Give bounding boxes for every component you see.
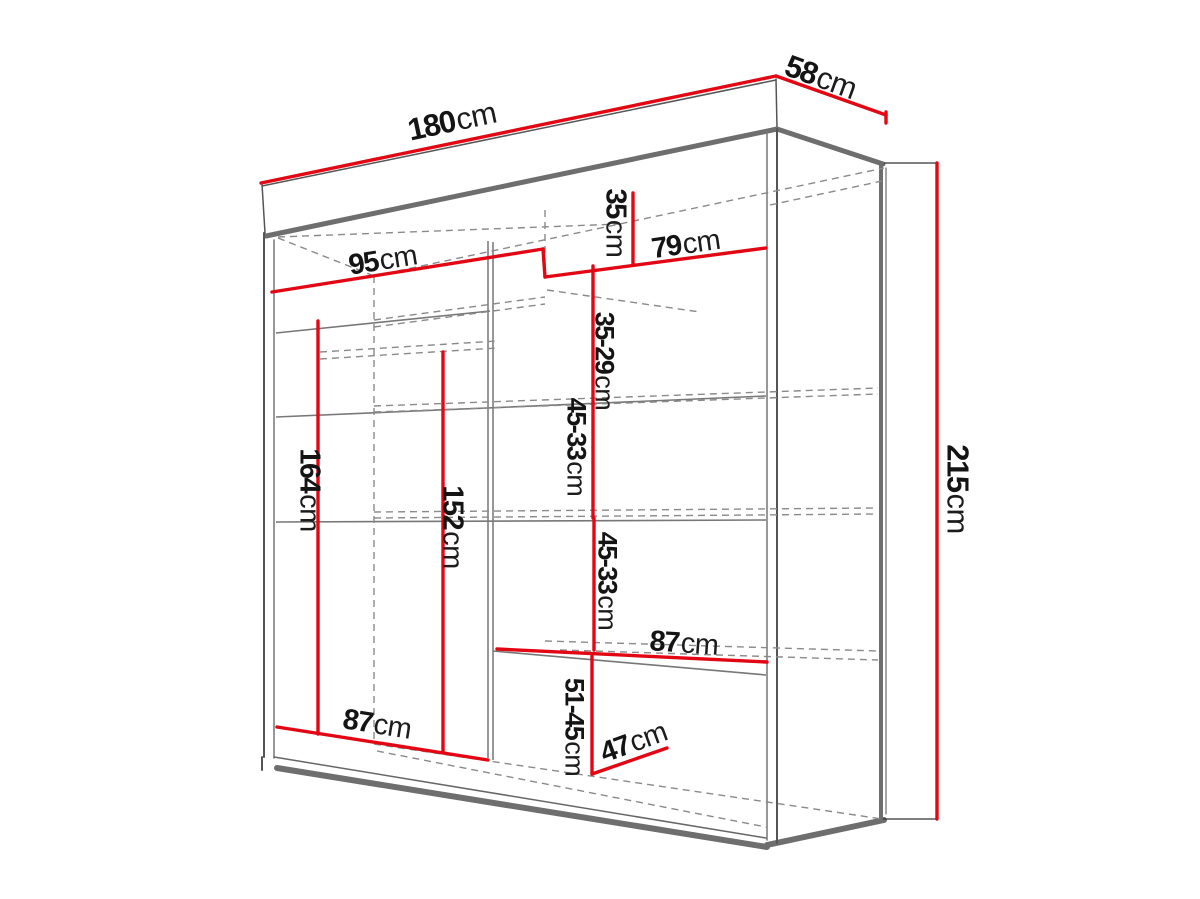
dim-value: 215: [941, 444, 976, 491]
dim-value: 45-33: [562, 398, 592, 460]
side-back-top: [770, 181, 882, 205]
dim-unit: cm: [437, 531, 469, 569]
wardrobe-line-drawing: [0, 0, 1200, 899]
side-top-edge: [777, 129, 883, 164]
dim-value: 35: [600, 189, 632, 218]
dim-unit: cm: [681, 224, 723, 261]
dim-label-total-height: 215cm: [943, 444, 974, 534]
dim-unit: cm: [941, 493, 976, 533]
dim-label-mid-shelf-width: 87cm: [649, 627, 720, 661]
dim-unit: cm: [593, 595, 623, 630]
dim-label-top-section-height: 35cm: [601, 189, 630, 258]
dim-value: 45-33: [593, 532, 623, 594]
dim-value: 87: [649, 625, 680, 659]
dim-value: 95: [346, 246, 380, 282]
dim-label-hanging-height-left: 164cm: [295, 448, 324, 532]
left-top-shelf: [276, 311, 490, 333]
fascia-left-edge: [262, 184, 265, 233]
dim-label-shelf-gap-1: 35-29cm: [591, 312, 618, 411]
right-rail-hidden: [547, 290, 700, 312]
fascia-top-edge: [262, 80, 776, 186]
dim-unit: cm: [560, 741, 590, 776]
dim-unit: cm: [562, 461, 592, 496]
dim-value: 164: [294, 448, 326, 492]
top-shelf-back-2: [374, 304, 545, 327]
dim-180-line: [261, 76, 776, 183]
shelf-front-edges: [276, 311, 766, 675]
dim-unit: cm: [590, 375, 620, 410]
vertical-divider: [488, 241, 493, 760]
dim-door-step: [543, 249, 545, 277]
dim-label-bottom-gap: 51-45cm: [561, 678, 588, 777]
dim-label-shelf-gap-3: 45-33cm: [594, 532, 621, 631]
dim-unit: cm: [371, 708, 413, 745]
plinth-side-edge: [767, 820, 884, 845]
dim-value: 51-45: [560, 678, 590, 740]
dim-label-shelf-gap-2: 45-33cm: [563, 398, 590, 497]
dim-value: 35-29: [590, 312, 620, 374]
front-top-edge: [266, 129, 777, 236]
dim-label-hanging-height-right: 152cm: [438, 485, 467, 569]
witness-lines: [883, 163, 936, 819]
dim-unit: cm: [294, 494, 326, 532]
dim-value: 87: [341, 703, 375, 739]
dim-value: 79: [650, 229, 683, 265]
dim-unit: cm: [377, 239, 419, 276]
dim-unit: cm: [680, 627, 720, 662]
dim-value: 152: [437, 485, 469, 529]
dim-unit: cm: [600, 220, 632, 258]
fascia-right-edge: [776, 79, 777, 128]
front-bottom-edge: [274, 757, 766, 838]
top-shelf-back-1: [374, 297, 545, 320]
wardrobe-dimension-diagram: 180cm 58cm 215cm 95cm 79cm 35cm 35-29cm …: [0, 0, 1200, 899]
middle-shelf-full: [276, 520, 766, 522]
